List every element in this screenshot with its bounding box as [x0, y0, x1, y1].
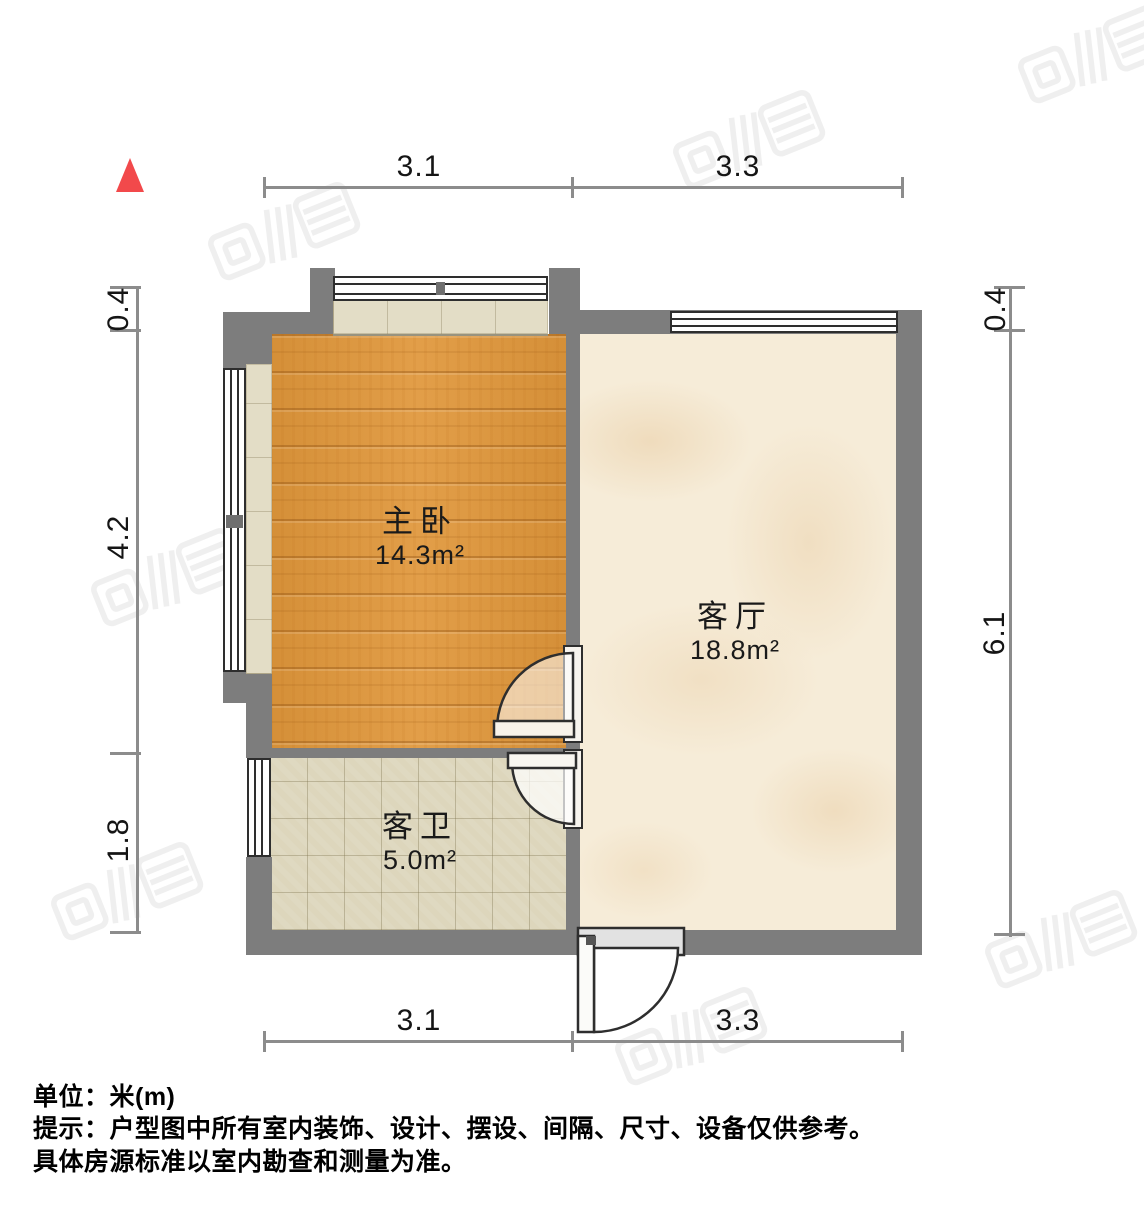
bathroom-door-swing	[512, 762, 574, 824]
room-name: 客卫	[330, 810, 510, 844]
entrance-door-hinge	[586, 936, 596, 945]
doors-overlay	[0, 0, 1144, 1230]
footer-disclaimer-line2: 具体房源标准以室内勘查和测量为准。	[33, 1147, 467, 1177]
footer-unit-label: 单位：米(m)	[33, 1082, 175, 1112]
footer-disclaimer-line1: 提示：户型图中所有室内装饰、设计、摆设、间隔、尺寸、设备仅供参考。	[33, 1114, 875, 1144]
room-name: 客厅	[645, 600, 825, 634]
floorplan-canvas: 3.1 3.3 3.1 3.3 0.4 4.2 1.8 0.4 6.1	[0, 0, 1144, 1230]
room-area: 14.3m²	[330, 539, 510, 571]
entrance-door-swing	[594, 948, 678, 1032]
bedroom-door-leaf	[494, 721, 574, 737]
entrance-door-leaf	[578, 936, 594, 1032]
room-label-bathroom: 客卫 5.0m²	[330, 810, 510, 876]
bedroom-door-swing	[497, 653, 573, 729]
room-label-bedroom: 主卧 14.3m²	[330, 505, 510, 571]
room-label-living-room: 客厅 18.8m²	[645, 600, 825, 666]
room-area: 5.0m²	[330, 844, 510, 876]
room-area: 18.8m²	[645, 634, 825, 666]
room-name: 主卧	[330, 505, 510, 539]
bathroom-door-leaf	[508, 753, 576, 768]
